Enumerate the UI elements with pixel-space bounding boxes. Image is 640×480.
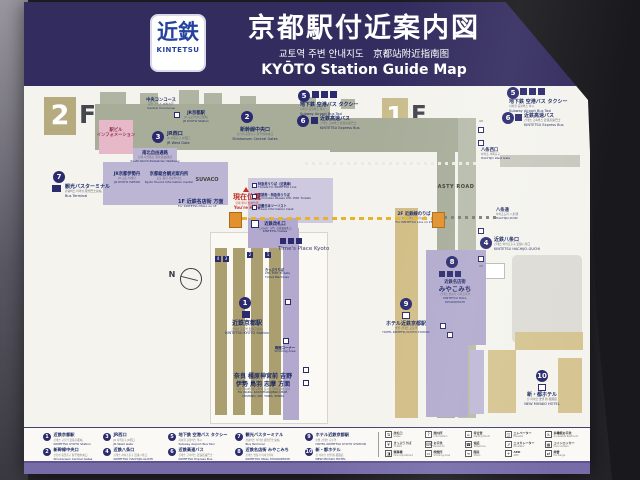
- airport-bus-icon: [529, 88, 536, 95]
- taxi-icon: [538, 88, 545, 95]
- track-number-chip: 1: [265, 252, 271, 258]
- map-badge-10: 10: [536, 370, 548, 382]
- travel-desk-icon: [252, 205, 257, 210]
- legend-item-4: 4 近鉄八条口긴테쓰 하치조출구 近铁八条口KINTETSU HACHIJO-G…: [103, 447, 153, 461]
- accessible-icon: [303, 380, 309, 386]
- up-label: UP: [479, 120, 483, 124]
- map-badge-2: 2: [241, 111, 253, 123]
- legend-item-9: 9 ホテル近鉄京都駅호텔 긴테쓰 교토역HOTEL KINTETSU KYOTO…: [305, 432, 366, 446]
- isetan-label: JR京都伊勢丹JR 교토 이세탄JR KYOTO ISETAN: [114, 172, 140, 185]
- compass-n-label: N: [169, 270, 176, 280]
- map-area: 2 F 1 F: [24, 86, 590, 427]
- kintetsu-logo-jp: 近鉄: [152, 19, 204, 46]
- restaurant-icon: [447, 271, 453, 277]
- map-badge-4: 4: [480, 237, 492, 249]
- escalator-icon: [478, 256, 484, 262]
- shop-icon: [439, 271, 445, 277]
- picto-tickets: ¥きっぷうりばTickets: [385, 441, 425, 451]
- shop-icon: [280, 238, 286, 244]
- sign-header: 近鉄 KINTETSU 京都駅付近案内図 교토역 주변 안내지도 京都站附近指南…: [24, 2, 590, 86]
- kintetsu-logo: 近鉄 KINTETSU: [150, 14, 206, 72]
- miyakomichi-mall-block: [470, 350, 484, 414]
- express-bus-icon: [515, 114, 522, 121]
- map-badge-1: 1: [239, 297, 251, 309]
- floor-2-square: 2: [44, 97, 76, 135]
- express-bus-icon: [311, 117, 318, 124]
- avanti-building: [512, 255, 582, 343]
- express-bus-label: 近鉄高速バス긴테쓰 고속버스 近铁高速巴士KINTETSU Express Bu…: [320, 116, 360, 130]
- bus-terminal-label: 観光バスターミナル관광버스 터미널 观光巴士总站Bus Terminal: [65, 184, 110, 198]
- travel-desk-label: 近畿日本ツーリストTravel Information Desk: [258, 204, 294, 212]
- express-bus-label: 近鉄高速バス긴테쓰 고속버스 近铁高速巴士KINTETSU Express Bu…: [524, 113, 564, 127]
- new-miyako-hotel-label: 新・都ホテル신 미야코 호텔 新·都酒店NEW MIYAKO HOTEL: [524, 392, 559, 406]
- legend-item-7: 7 観光バスターミナル관광버스 터미널 观光巴士总站Bus Terminal: [235, 432, 283, 446]
- sign-title-jp: 京都駅付近案内図: [214, 6, 514, 45]
- shinkansen-central-label: 新幹線中央口신칸센 중앙출구 新干线中央口Shinkansen Central …: [232, 127, 277, 141]
- picto-gates: ⇅改札口Gates: [385, 431, 425, 441]
- track-number-chip: 4: [215, 256, 221, 262]
- store-icon: [296, 238, 302, 244]
- up-label: UP: [479, 265, 483, 269]
- picto-coin-lockers: ▦コインロッカーCoin Lockers: [545, 441, 585, 451]
- sign-title-block: 京都駅付近案内図 교토역 주변 안내지도 京都站附近指南图 KYŌTO Stat…: [214, 6, 514, 78]
- sign-footer-band: [24, 461, 590, 475]
- commuter-pass-icon: [252, 194, 257, 199]
- legend-item-3: 3 JR西口JR 서쪽출구 JR西口JR West Gate: [103, 432, 135, 446]
- smoking-icon: [283, 338, 289, 344]
- picto-elevator: ◫エレベーターElevator: [505, 431, 545, 441]
- asty-road-label: ASTY ROAD: [438, 184, 475, 190]
- floor-2-f: F: [79, 100, 96, 129]
- airport-bus-icon: [321, 91, 328, 98]
- commuter-pass-label: 定期券・特急券うりばCommuter Passes LTD. EXP. Tick…: [258, 193, 311, 201]
- picto-accessible-restroom: ♿多機能お手洗Accessible Restroom: [545, 431, 585, 441]
- escalator-marker-icon: [432, 212, 445, 228]
- map-badge-6: 6: [502, 112, 514, 124]
- jr-west-gate-label: JR西口JR 서쪽출구 JR西口JR West Gate: [167, 131, 190, 145]
- legend-item-8: 8 近鉄名店街 みやこみち긴테쓰 명점가 미야코미치KINTETSU MALL …: [235, 447, 290, 461]
- elevator-icon: [303, 367, 309, 373]
- route-dotted-white: [305, 162, 477, 165]
- overpass-walkway: [500, 155, 580, 167]
- bed-icon: [538, 384, 546, 391]
- picto-information: ?案内所Information: [425, 431, 465, 441]
- map-badge-3: 3: [152, 131, 164, 143]
- store-icon: [455, 271, 461, 277]
- subway-bus-taxi-label: 地下鉄 空港バス タクシー지하철 공항버스 택시Subway Airport B…: [300, 102, 358, 116]
- map-badge-9: 9: [400, 298, 412, 310]
- accessible-icon: [447, 332, 453, 338]
- map-badge-8: 8: [446, 256, 458, 268]
- subway-icon: [520, 88, 527, 95]
- central-concourse-label: 中央コンコース중앙 콘코스 中央大厅Central Concourse: [146, 98, 176, 111]
- bed-icon: [402, 312, 410, 319]
- picto-stairs: ≡階段Stairs: [465, 450, 505, 460]
- picto-smoking-area: ▭喫煙所Smoking Area: [425, 450, 465, 460]
- crossing-box: [483, 263, 505, 279]
- map-badge-5: 5: [507, 87, 519, 99]
- stairs-icon: [285, 299, 291, 305]
- subway-bus-taxi-label: 地下鉄 空港バス タクシー지하철 공항버스 택시Subway Airport B…: [509, 99, 567, 113]
- times-place-label: Time's Place Kyoto: [278, 246, 329, 253]
- miyakomichi-label: 近鉄名店街 みやこみち 긴테쓰 명점가 미야코미치 KINTETSU MALL …: [439, 280, 472, 304]
- new-miyako-hotel-block: [515, 332, 583, 350]
- legend-item-10: 10 新・都ホテル신 미야코 호텔 新·都酒店NEW MIYAKO HOTEL: [305, 447, 346, 461]
- kintetsu-logo-en: KINTETSU: [152, 46, 204, 54]
- sign-title-en: KYŌTO Station Guide Map: [214, 62, 514, 78]
- legend-divider: [378, 432, 379, 457]
- train-icon: [242, 311, 250, 318]
- cafe-icon: [288, 238, 294, 244]
- picto-escalator: ⇗エスカレーターEscalator: [505, 441, 545, 451]
- restroom-icon: [440, 323, 446, 329]
- stairs-icon: [478, 228, 484, 234]
- ticket-gate-icon: [251, 220, 259, 228]
- miyakomichi-mall-block: [426, 345, 468, 417]
- tourist-info-label: 京都総合観光案内所교토 종합 관광안내소Kyoto Tourist Inform…: [145, 172, 194, 185]
- map-badge-6: 6: [297, 115, 309, 127]
- route-dotted-gray: [444, 216, 500, 219]
- jr-gate-icon: [174, 112, 180, 118]
- sightseeing-bus-icon: [52, 185, 61, 192]
- hotel-kintetsu-label: ホテル近鉄京都駅호텔 긴테쓰 교토역 HOTEL KINTETSU KYOTO …: [383, 321, 430, 334]
- you-are-here-label: 現在位置 현재 위치 当前位置 You're Here: [233, 193, 261, 210]
- map-badge-7: 7: [53, 171, 65, 183]
- pictogram-legend: ⇅改札口Gates ?案内所Information ⌂待合室Waiting Ro…: [385, 431, 585, 460]
- escalator-icon: [478, 140, 484, 146]
- new-miyako-hotel-block: [558, 358, 582, 413]
- legend-item-6: 6 近鉄高速バス긴테쓰 고속버스 近铁高速巴士KINTETSU Express …: [168, 447, 212, 461]
- new-miyako-hotel-block: [488, 350, 516, 413]
- sign-title-sub: 교토역 주변 안내지도 京都站附近指南图: [214, 46, 514, 60]
- kintetsu-gates-label: 近鉄改札口 このほか（2F）近鉄東改札口 KINTETSU Gates: [258, 222, 291, 234]
- picto-restroom: WCお手洗Restroom: [425, 441, 465, 451]
- mall-direction-label: 1F 近鉄名店街 方面For KINTETSU MALL on 1F: [178, 199, 223, 209]
- map-badge-5: 5: [298, 90, 310, 102]
- escalator-marker-icon: [229, 212, 242, 228]
- track-number-chip: 3: [223, 256, 229, 262]
- destinations-label: 奈良 橿原神宮前 吉野 伊勢 鳥羽 志摩 方面 나라 가시하라진구마에 요시노 …: [234, 373, 292, 399]
- station-info-label: 駅ビルインフォメーション: [97, 128, 135, 139]
- stairs-icon: [478, 127, 484, 133]
- track-number-chip: 2: [247, 252, 253, 258]
- suvaco-label: SUVACO: [196, 177, 219, 183]
- ticket-machines-label: きっぷうりば LTD. EXP. TicketsTicket Machines: [265, 268, 290, 280]
- guide-map-sign: 近鉄 KINTETSU 京都駅付近案内図 교토역 주변 안내지도 京都站附近指南…: [24, 2, 590, 474]
- legend-item-1: 1 近鉄京都駅긴테쓰 교토역 近铁京都站KINTETSU KYOTO Stati…: [43, 432, 91, 446]
- passageway-label: 南北自由通路남북 자유통로 南北自由通道South-North Pedestri…: [130, 151, 179, 164]
- hachijo-west-gate-label: 八条西口하치조 서쪽출구HACHIJO West Gate: [481, 148, 510, 161]
- ticket-window-icon: [252, 183, 257, 188]
- compass-icon: [180, 268, 202, 290]
- picto-fare-adjustment: ◨精算機Fare Adjustment: [385, 450, 425, 460]
- picto-waiting-room: ⌂待合室Waiting Room: [465, 431, 505, 441]
- ltd-exp-tickets-label: 特急券うりば（近鉄線）Tickets for KINTETSU Line: [258, 182, 296, 190]
- legend-item-5: 5 地下鉄 空港バス タクシー지하철 공항버스 택시Subway Airport…: [168, 432, 227, 446]
- kintetsu-kyoto-station-label: 近鉄京都駅긴테쓰 교토역 近铁京都站KINTETSU KYOTO Station: [225, 320, 269, 335]
- photo-of-station-guide-sign: { "header":{ "logo_jp":"近鉄","logo_en":"K…: [0, 0, 640, 480]
- picto-exchange: ⇄両替Exchange: [545, 450, 585, 460]
- legend-item-2: 2 新幹線中央口신칸센 중앙출구 新干线中央口Shinkansen Centra…: [43, 447, 92, 461]
- legend-bar: 1 近鉄京都駅긴테쓰 교토역 近铁京都站KINTETSU KYOTO Stati…: [24, 427, 590, 462]
- subway-icon: [312, 91, 319, 98]
- taxi-icon: [330, 91, 337, 98]
- picto-telephone: ☎電話Telephone: [465, 441, 505, 451]
- you-are-here-triangle: [243, 187, 249, 192]
- kintetsu-hachijo-label: 近鉄八条口긴테쓰 하치조출구 近铁八条口KINTETSU HACHIJO-GUC…: [494, 237, 540, 251]
- jr-station-label: JR京都駅JR 교토역 JR京都站JR KYOTO Station: [183, 111, 209, 124]
- picto-aed: +AEDAED: [505, 450, 545, 460]
- route-dashed-yellow: [242, 217, 432, 220]
- smoking-area-label: 喫煙コーナーSmoking Area: [275, 346, 296, 354]
